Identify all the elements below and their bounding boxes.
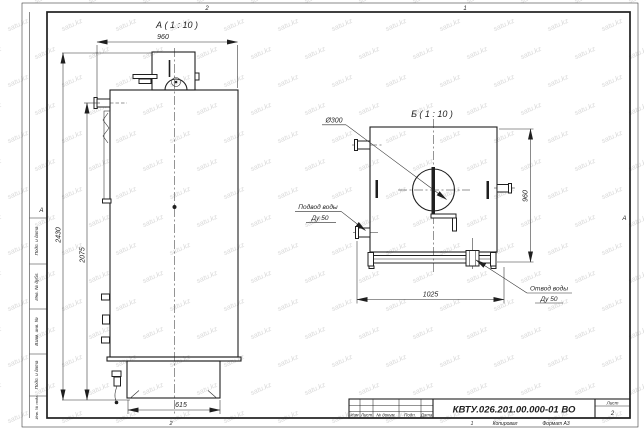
copied-label: Копировал <box>493 421 518 427</box>
zone-marker-top-right: 1 <box>463 6 466 12</box>
sheet-number: 2 <box>610 411 615 417</box>
tb-header-list: Лист <box>360 413 373 418</box>
document-number: КВТУ.026.201.00.000-01 ВО <box>453 405 576 416</box>
tb-header-izm: Изм <box>350 413 358 418</box>
tb-header-data: Дата <box>420 413 433 418</box>
tb-header-doc: № докум. <box>376 413 395 418</box>
zone-marker-top-left: 2 <box>204 6 209 12</box>
view-b-front: Б ( 1 : 10 ) <box>352 109 515 272</box>
dim-2430: 2430 <box>56 227 63 244</box>
view-a-side: А ( 1 : 10 ) <box>94 20 241 414</box>
side-field-label: Инв. № дубл. <box>34 272 39 300</box>
view-a-title: А ( 1 : 10 ) <box>155 20 198 30</box>
engineering-drawing-canvas: Подп. и дата Инв. № дубл. Взам. инв. № П… <box>0 0 644 430</box>
side-field-label: Подп. и дата <box>34 226 39 255</box>
tb-header-podp: Подп. <box>404 413 416 418</box>
inlet-label-line1: Подвод воды <box>298 203 338 211</box>
dim-diameter-300: Ø300 <box>324 118 342 125</box>
side-field-label: Инв. № подл. <box>34 395 39 420</box>
view-b-title: Б ( 1 : 10 ) <box>411 109 453 119</box>
outlet-label-line1: Отвод воды <box>530 285 568 293</box>
dim-1025: 1025 <box>423 292 439 299</box>
drawing-sheet: satu.kzsatu.kzsatu.kzsatu.kzsatu.kzsatu.… <box>0 0 644 430</box>
dim-960-top: 960 <box>157 34 169 41</box>
zone-marker-right: А <box>621 215 626 222</box>
zone-marker-bottom-right: 1 <box>471 421 474 427</box>
zone-marker-bottom-left: 2 <box>168 421 172 427</box>
outlet-label-line2: Ду 50 <box>540 296 558 303</box>
zone-marker-left: А <box>38 207 43 214</box>
sheet-label: Лист <box>606 401 619 406</box>
dim-615: 615 <box>175 402 187 409</box>
side-field-label: Подп. и дата <box>34 360 39 389</box>
inlet-label-line2: Ду 50 <box>311 215 329 222</box>
format-label: Формат А3 <box>542 421 570 427</box>
title-block: Изм Лист № докум. Подп. Дата КВТУ.026.20… <box>168 399 630 427</box>
dim-2075: 2075 <box>80 247 87 264</box>
sheet-frame: Подп. и дата Инв. № дубл. Взам. инв. № П… <box>22 3 638 427</box>
dim-960-right: 960 <box>523 190 530 202</box>
side-field-label: Взам. инв. № <box>34 317 39 345</box>
